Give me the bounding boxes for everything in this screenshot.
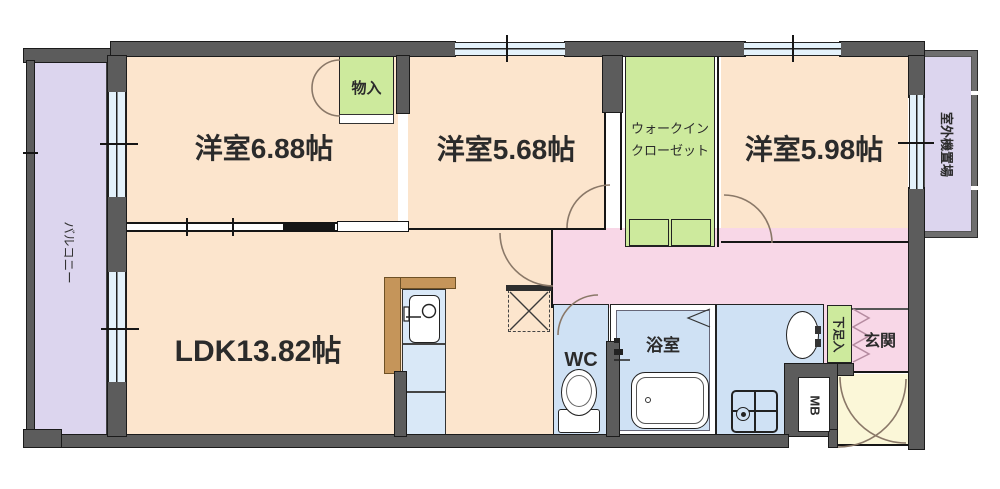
- wic-door-panel: [671, 219, 711, 246]
- sliding-door-panel: [337, 221, 409, 232]
- balcony-parapet: [26, 60, 35, 437]
- floor-plan: 洋室6.88帖 洋室5.68帖 洋室5.98帖 LDK13.82帖 ウォークイン…: [0, 0, 1000, 489]
- storage-closet: [339, 55, 394, 115]
- entry-porch: [838, 374, 908, 446]
- kitchen-counter: [384, 277, 401, 374]
- wall: [606, 341, 620, 437]
- wall: [23, 429, 62, 448]
- wall: [396, 55, 410, 114]
- pan-drain-dot: [741, 412, 746, 417]
- storage-shelf: [339, 114, 394, 124]
- entrance-upper-line: [850, 308, 908, 310]
- wall: [908, 187, 925, 450]
- shoe-cabinet: [827, 305, 852, 363]
- kitchen-sink: [409, 295, 440, 343]
- wall: [908, 55, 925, 98]
- toilet-seat: [566, 375, 592, 407]
- washbasin-faucet: [815, 326, 821, 334]
- room-bedroom3: [721, 55, 908, 243]
- partition-tick: [186, 218, 188, 236]
- wall: [23, 48, 111, 63]
- window: [108, 272, 126, 382]
- outdoor-unit-space: [924, 56, 972, 232]
- wall: [564, 41, 746, 57]
- sliding-door-closed: [283, 224, 335, 230]
- partition-tick: [232, 218, 234, 236]
- frame-notch: [971, 91, 980, 95]
- dimension-tick: [23, 152, 38, 154]
- dimension-tick: [506, 35, 508, 62]
- dimension-tick: [898, 142, 934, 144]
- wic-door-panel: [629, 219, 669, 246]
- kitchen-unit-divider: [403, 343, 445, 345]
- wall: [394, 371, 407, 437]
- wall-line: [717, 55, 719, 247]
- wall-line: [721, 241, 908, 243]
- kitchen-unit-divider: [403, 391, 445, 393]
- window: [455, 42, 565, 56]
- wall-line: [551, 228, 553, 308]
- frame-notch: [971, 186, 980, 190]
- wall-line: [408, 228, 606, 230]
- wall-stub: [506, 285, 552, 291]
- room-bedroom2: [408, 55, 604, 230]
- porch-edge-line: [838, 444, 908, 446]
- room-balcony: [33, 62, 107, 437]
- washbasin: [786, 311, 819, 359]
- wall-line: [604, 113, 606, 230]
- meter-box: [798, 377, 830, 432]
- washbasin-faucet: [815, 339, 821, 347]
- room-ldk: [125, 230, 554, 437]
- hallway: [552, 228, 908, 308]
- wall-line: [620, 113, 622, 230]
- bathtub-drain: [645, 397, 651, 403]
- dimension-tick: [101, 328, 139, 330]
- dimension-tick: [100, 143, 138, 145]
- wall: [602, 55, 623, 113]
- refrigerator-space: [508, 290, 550, 332]
- dimension-tick: [792, 35, 794, 62]
